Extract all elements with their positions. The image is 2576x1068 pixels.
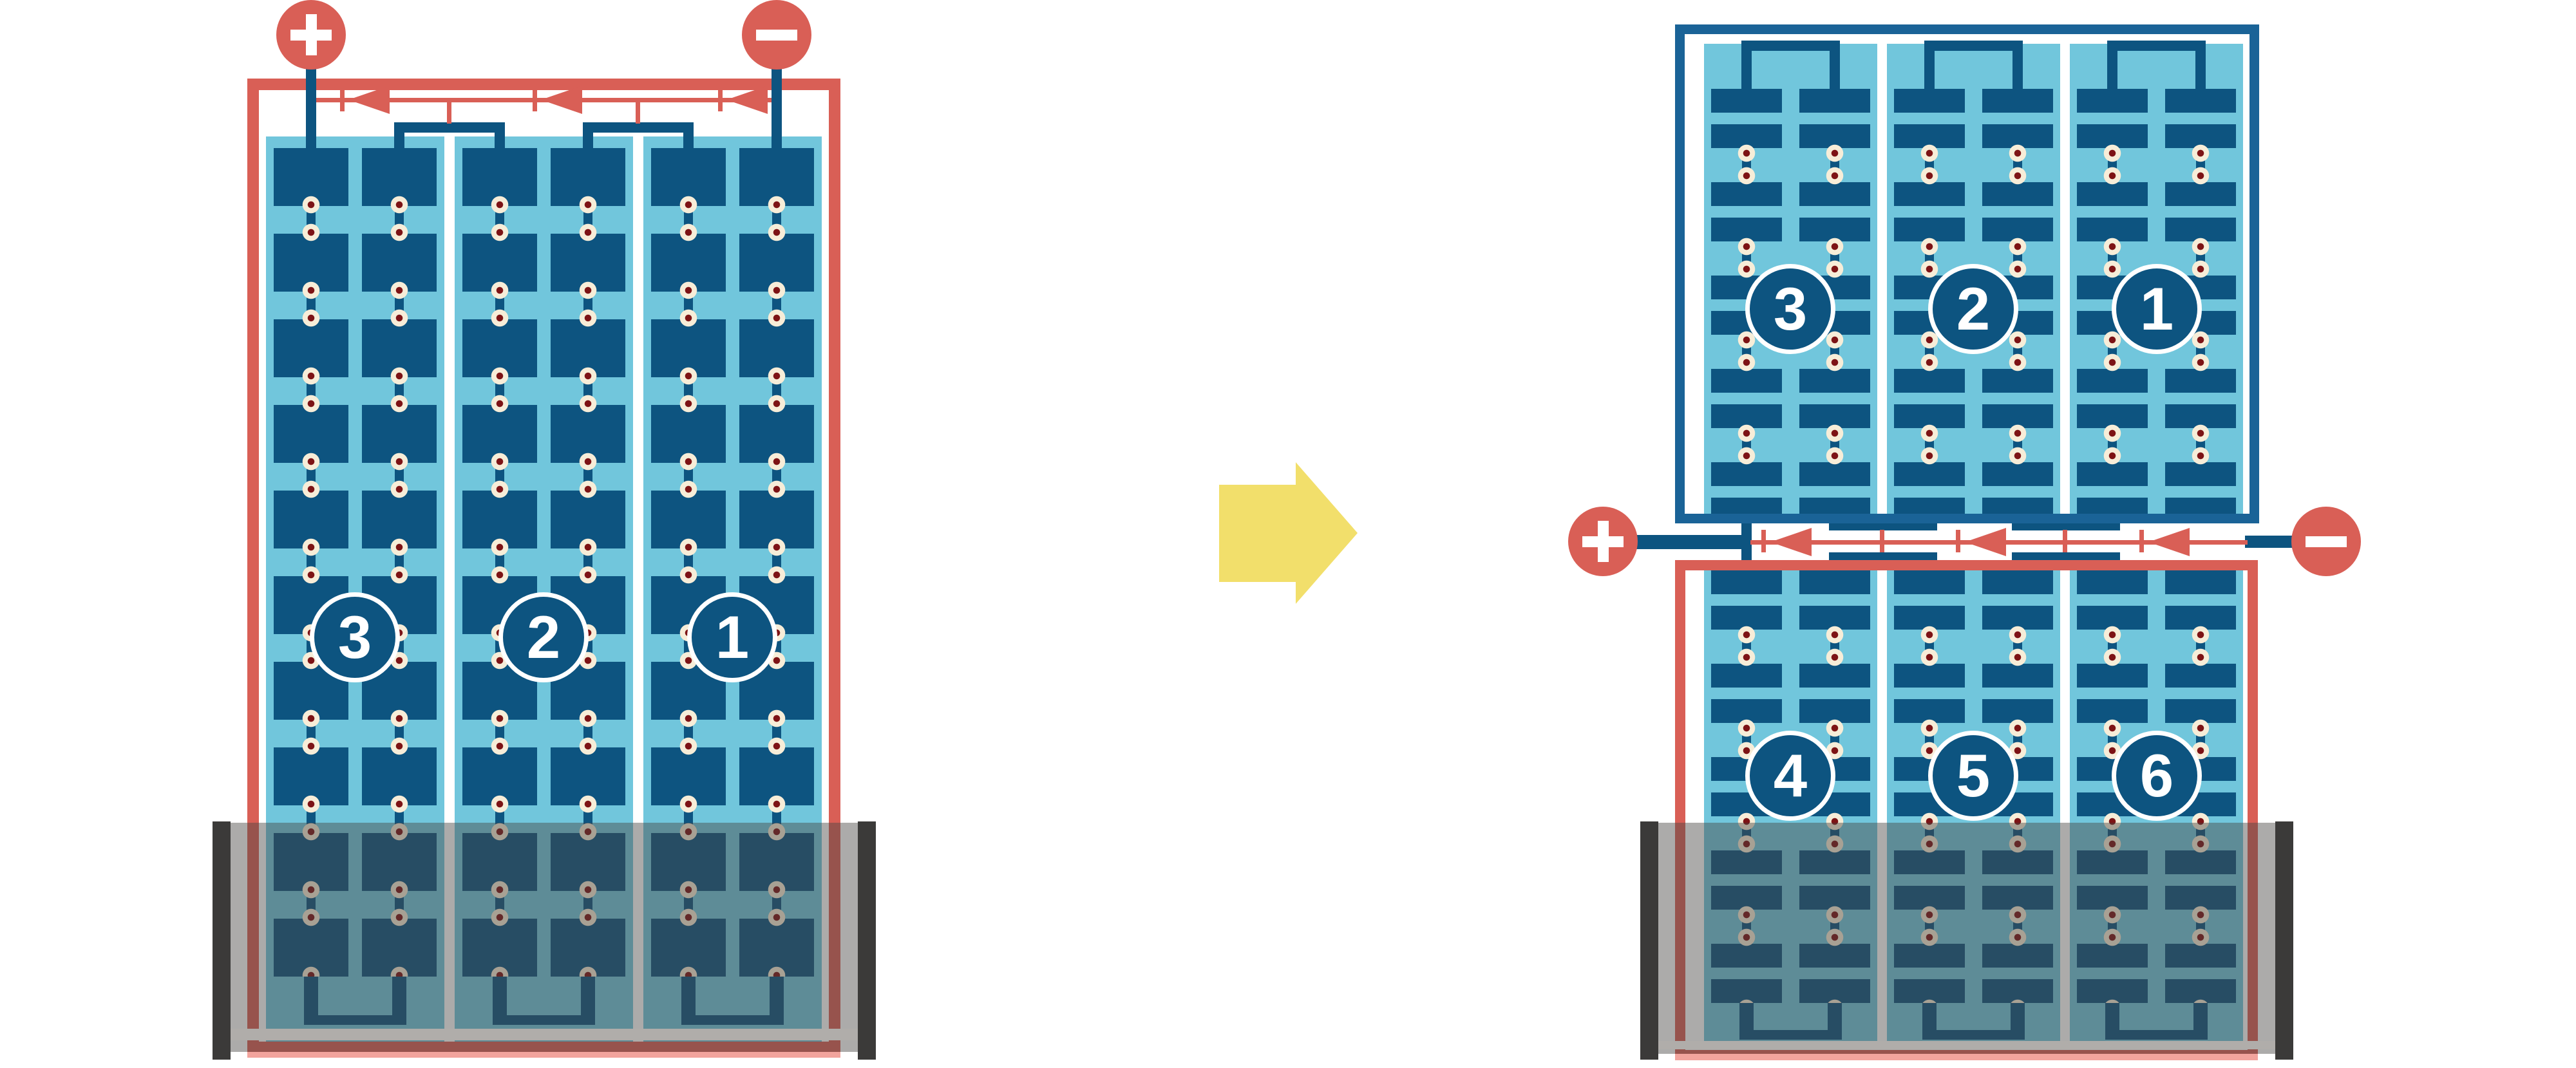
current-arrowhead-icon [1770,528,1812,556]
battery-tray-lip [1658,1041,2275,1049]
top-strap-leg [1830,41,1840,89]
top-strap-leg [2012,41,2023,89]
diode-tick [1880,530,1884,552]
cell-number-badge: 5 [1928,731,2018,821]
figure-canvas: 321 321456 [0,0,2576,1068]
tray-wall [1640,821,1658,1060]
top-strap-bar [2107,41,2206,51]
top-strap-leg [1924,41,1935,89]
junction-tab [2012,552,2120,560]
cell-number-badge: 6 [2112,731,2202,821]
cell-number-badge: 1 [2112,264,2202,354]
top-strap-leg [2195,41,2206,89]
current-arrowhead-icon [1965,528,2006,556]
minus-terminal-lead [2245,536,2294,548]
top-strap-bar [1741,41,1840,51]
diode-tick [1956,530,1960,552]
minus-icon [2306,536,2347,547]
diode-tick [1761,530,1766,552]
diode-tick [2063,530,2067,552]
battery-tray-shade [1658,823,2275,1054]
plus-terminal [1568,507,1638,576]
cell-number-badge: 3 [1745,264,1835,354]
case-bottom-edge [1675,1054,2258,1060]
exploded-battery-unit: 321456 [0,0,2576,1068]
diode-tick [2139,530,2144,552]
cell-number-badge: 2 [1928,264,2018,354]
top-strap-leg [1741,41,1752,89]
cell-number-badge: 4 [1745,731,1835,821]
top-strap-bar [1924,41,2023,51]
tray-wall [2275,821,2293,1060]
top-strap-leg [2107,41,2117,89]
plus-icon-vertical [1598,521,1609,562]
junction-tab [1829,552,1937,560]
plus-terminal-lead [1636,535,1747,549]
current-arrowhead-icon [2148,528,2190,556]
minus-terminal [2291,507,2361,576]
